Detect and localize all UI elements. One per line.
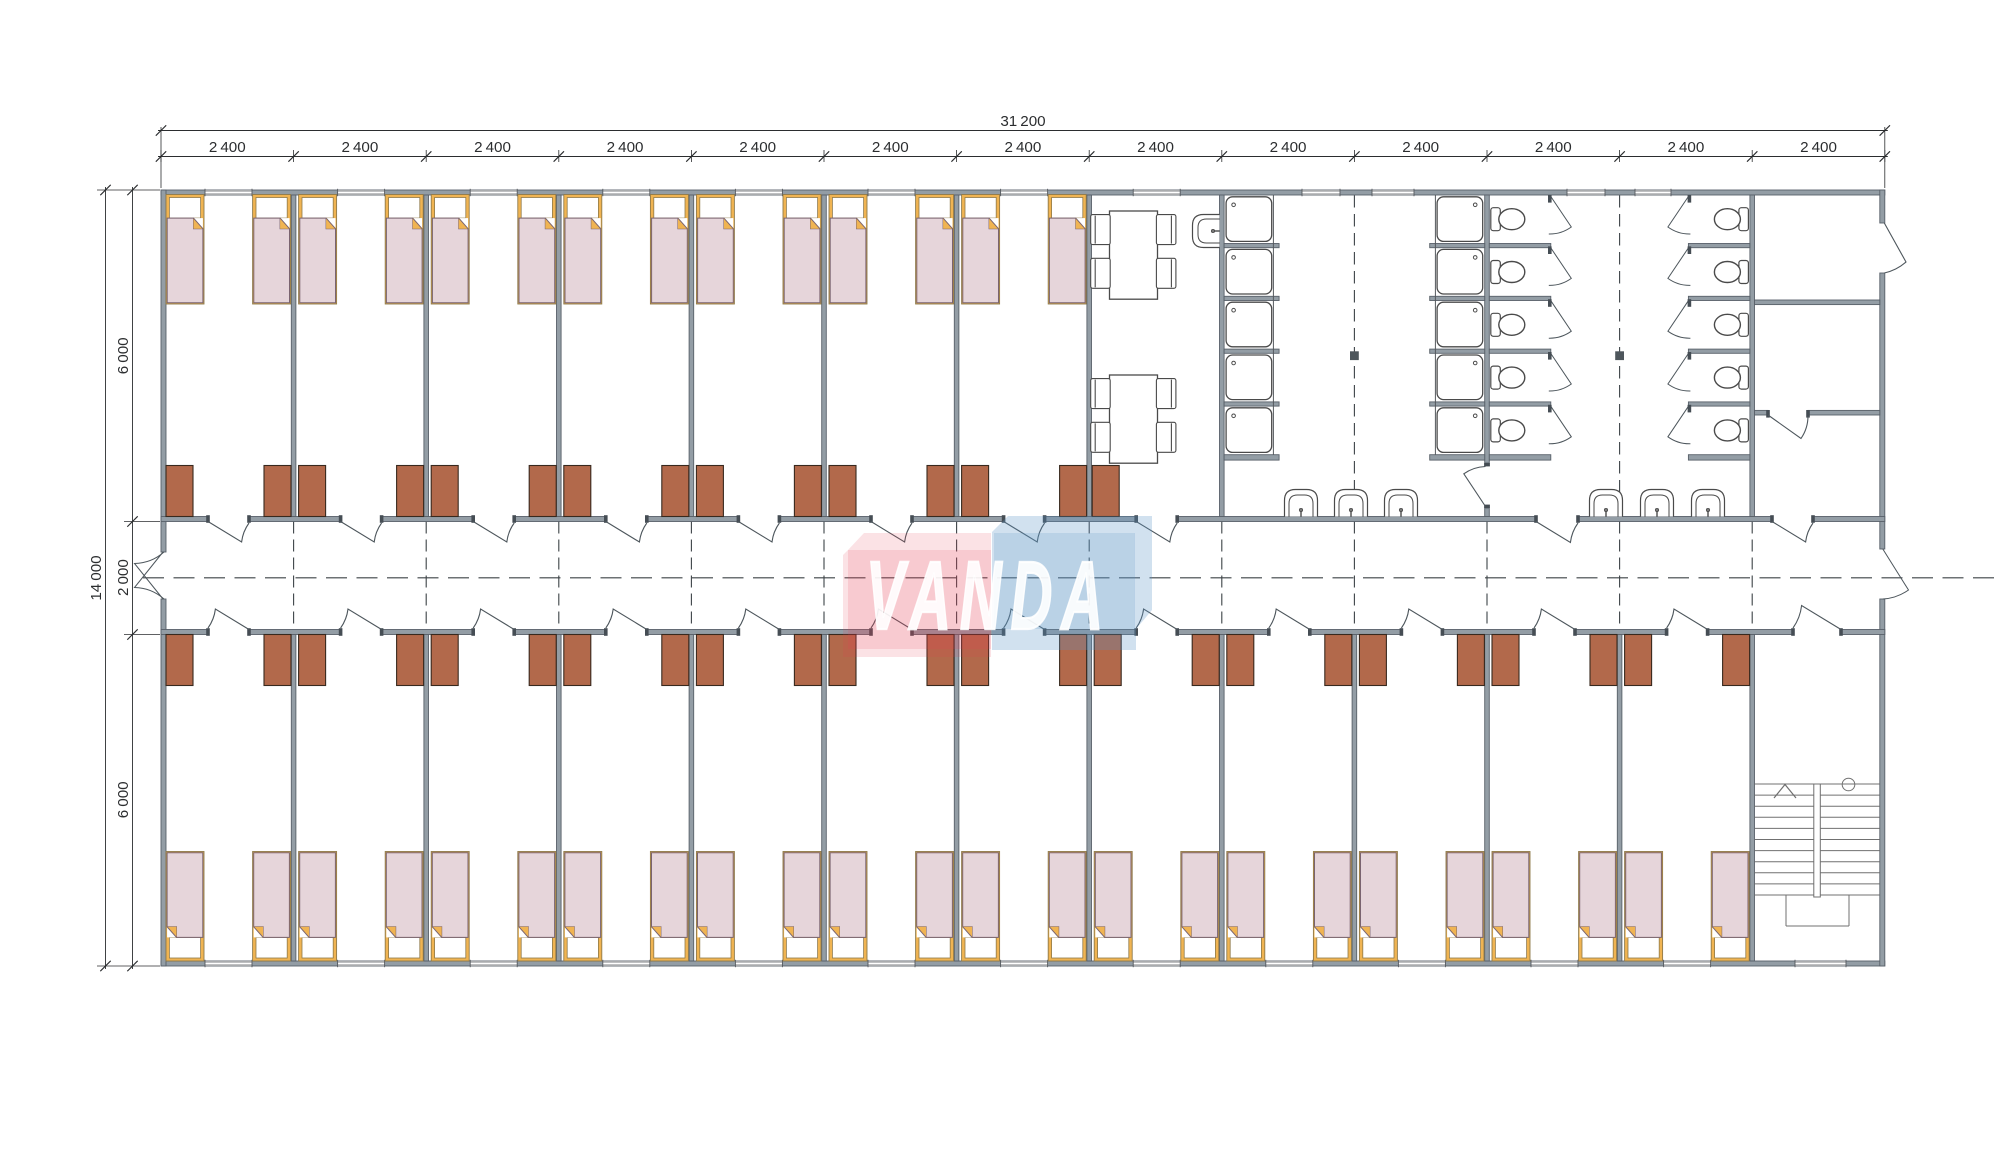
svg-text:2 400: 2 400 [872, 139, 909, 156]
svg-text:14 000: 14 000 [88, 555, 105, 600]
svg-text:2 400: 2 400 [1402, 139, 1439, 156]
svg-text:2 400: 2 400 [739, 139, 776, 156]
svg-text:6 000: 6 000 [115, 781, 132, 818]
svg-text:2 400: 2 400 [1270, 139, 1307, 156]
svg-text:2 400: 2 400 [1004, 139, 1041, 156]
svg-text:2 400: 2 400 [1535, 139, 1572, 156]
svg-text:VANDA: VANDA [866, 541, 1112, 650]
svg-text:2 400: 2 400 [1667, 139, 1704, 156]
svg-text:2 000: 2 000 [115, 559, 132, 596]
svg-text:2 400: 2 400 [209, 139, 246, 156]
svg-text:2 400: 2 400 [607, 139, 644, 156]
svg-text:2 400: 2 400 [474, 139, 511, 156]
svg-text:2 400: 2 400 [1800, 139, 1837, 156]
svg-text:2 400: 2 400 [341, 139, 378, 156]
svg-text:2 400: 2 400 [1137, 139, 1174, 156]
svg-text:6 000: 6 000 [115, 337, 132, 374]
svg-text:31 200: 31 200 [1000, 113, 1045, 130]
